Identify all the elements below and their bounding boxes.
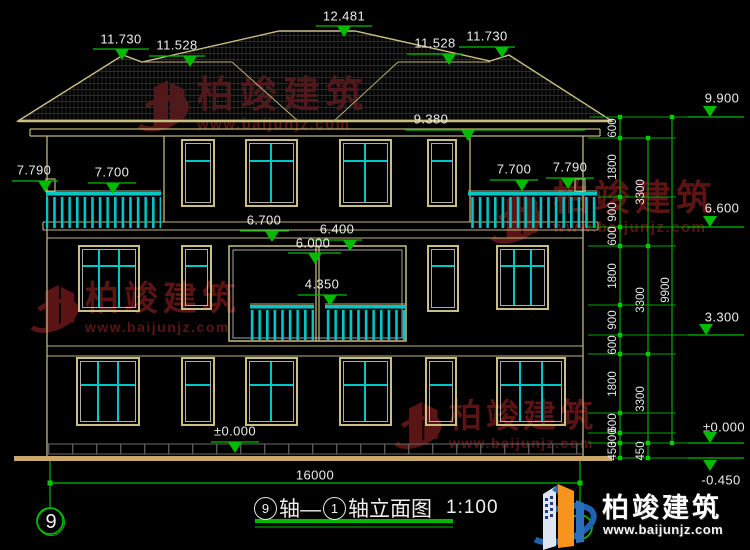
dim-col1: 600 [607,335,619,354]
dim-tick [670,115,674,119]
elevation-marker-triangle [308,253,322,264]
dim-tick [646,244,650,248]
elev-band-left: 6.700 [247,213,282,228]
elev-left-ridge-low: 11.528 [156,38,197,53]
dim-col2: 3300 [635,179,647,205]
dim-tick [646,352,650,356]
axis-bubble-left: 9 [37,508,65,536]
dim-col1: 900 [607,202,619,221]
window-inner-frame [186,144,211,203]
elev-right-upper: 6.600 [705,201,740,216]
brand-name: 柏竣建筑 [602,486,722,525]
elev-balcony-mid: 4.350 [305,277,340,292]
elevation-marker-triangle [699,324,713,335]
plinth-joints [47,444,583,454]
elev-left-post: 7.790 [17,163,52,178]
railing-bars [46,197,161,228]
elev-right-ground: ±0.000 [703,420,745,435]
elev-roof-peak: 12.481 [323,9,365,24]
elev-right-post: 7.790 [553,160,588,175]
elevation-marker-triangle [703,216,717,227]
title-axis-end: 1 [331,501,338,516]
window-mullions [344,362,387,421]
window-mullions [250,144,293,202]
elev-right-ridge-low: 11.528 [414,36,455,51]
axis-left-label: 9 [45,511,56,534]
dim-tick [48,481,53,486]
wall-outline [47,136,583,456]
title-suffix: 轴立面图 [348,493,432,523]
title-axis-start: 9 [262,501,269,516]
cad-elevation-drawing: 柏竣建筑 www.baijunjz.com 柏竣建筑 www.baijunjz.… [0,0,750,550]
window-frame [77,358,139,425]
window-inner-frame [501,250,545,306]
elev-band-mid: 6.400 [320,222,355,237]
elev-band-center: 6.000 [296,236,331,251]
window-frame [182,140,214,206]
dim-tick [670,441,674,445]
elev-right-top: 9.900 [705,91,740,106]
dim-col2: 3300 [635,386,647,412]
ground-line [14,456,612,461]
brand-logo-icon [528,472,606,550]
railing-top-rail [468,192,597,196]
window-frame [182,358,214,425]
dim-col1: 600 [607,226,619,245]
elevation-marker-triangle [703,460,717,471]
window-inner-frame [432,250,455,308]
window-mullions [501,250,544,305]
window-inner-frame [83,250,136,308]
window-mullions [81,362,135,421]
elevation-marker-triangle [561,178,575,189]
brand-site: www.baijunjz.com [603,522,723,537]
window-inner-frame [186,250,208,306]
elev-left-ridge-high: 11.730 [100,32,141,47]
window-frame [428,246,458,311]
dim-col3: 9900 [660,277,672,303]
elevation-marker-triangle [38,181,52,192]
window-inner-frame [430,362,453,422]
window-mullions [501,362,561,421]
railing-bars [468,197,597,228]
dim-tick [646,136,650,140]
railing-bars [325,310,406,340]
window-mullions [344,144,387,202]
elev-right-ridge-high: 11.730 [466,29,507,44]
window-frame [428,140,456,206]
elev-right-lower: 3.300 [705,310,740,325]
elev-eave: 9.380 [414,112,449,127]
dim-col1: 1800 [607,371,619,397]
title-axis-end-circle: 1 [323,497,346,520]
dim-tick [618,195,622,199]
window-inner-frame [186,362,211,422]
window-mullions [83,250,135,307]
elev-left-rail: 7.700 [95,165,130,180]
railing-top-rail [325,305,406,309]
elevation-linework [0,0,750,550]
title-axis-link: 轴— [279,493,321,523]
dim-total-width: 16000 [296,468,334,483]
window-mullions [250,362,293,421]
elevation-marker-triangle [265,231,279,242]
window-frame [426,358,456,425]
window-inner-frame [501,362,562,422]
dim-col2: 450 [635,441,647,460]
window-frame [497,246,548,309]
dim-tick [618,303,622,307]
elevation-marker-triangle [515,180,529,191]
window-inner-frame [81,362,136,422]
dim-col1: 600 [607,118,619,137]
title-scale: 1:100 [446,497,499,519]
elevation-marker-triangle [703,106,717,117]
dim-col1: 450 [607,441,619,460]
window-frame [497,358,565,425]
window-frame [79,246,139,311]
railing-top-rail [46,192,161,196]
railing-bars [250,310,314,340]
title-axis-start-circle: 9 [254,497,277,520]
brand-logo-block: 柏竣建筑 www.baijunjz.com [528,472,750,550]
dim-col1: 900 [607,310,619,329]
window-frame [182,246,211,309]
elev-right-rail: 7.700 [497,162,532,177]
dim-col2: 3300 [635,287,647,313]
railing-top-rail [250,305,314,309]
window-inner-frame [432,144,453,203]
elev-ground-center: ±0.000 [214,424,256,439]
drawing-title: 9 轴— 1 轴立面图 1:100 [252,493,499,523]
dim-col1: 1800 [607,263,619,289]
dim-col1: 1800 [607,154,619,180]
